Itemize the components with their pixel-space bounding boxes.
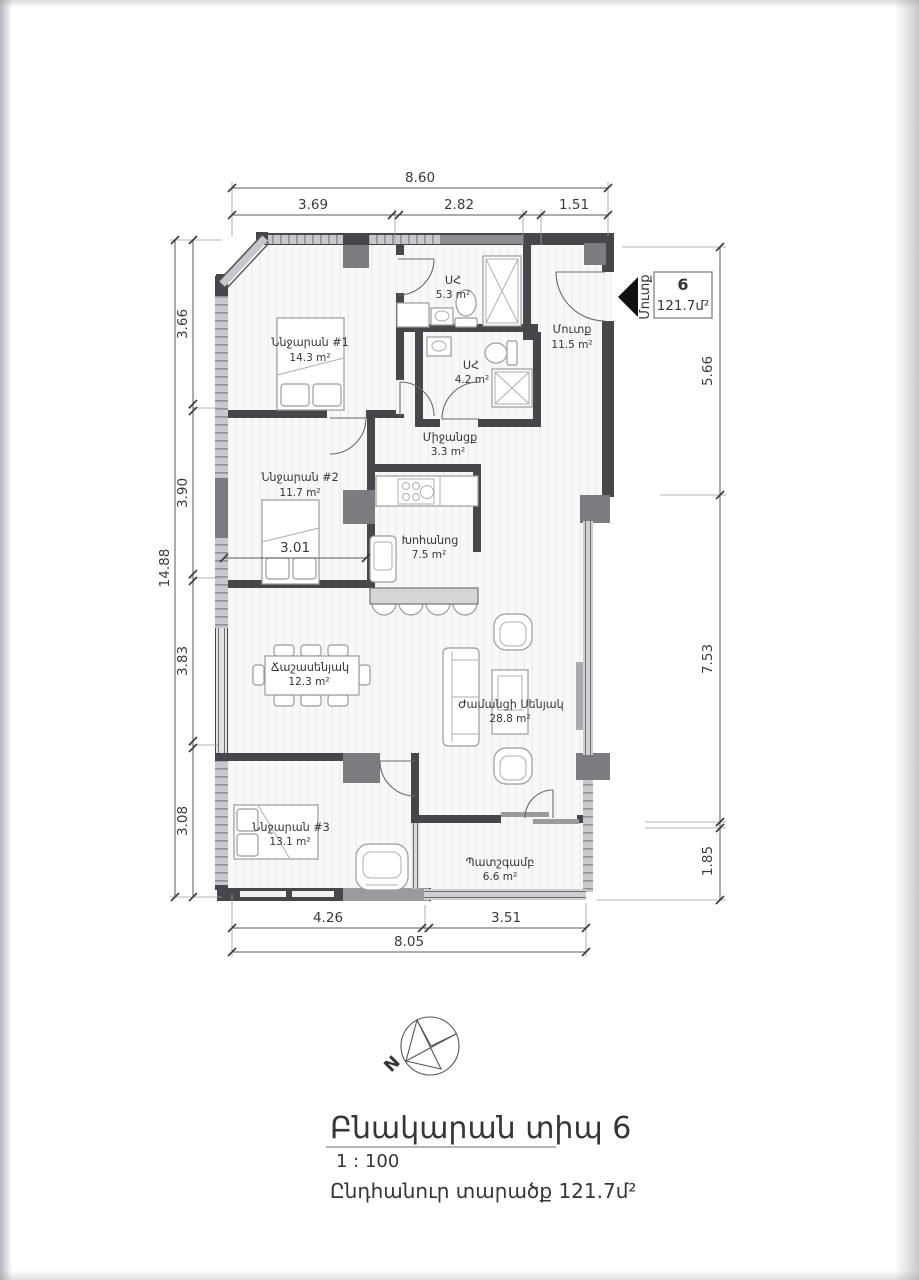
room-name: ՍՀ	[463, 359, 479, 372]
dim-label: 1.51	[559, 197, 589, 213]
room-name: Ննջարան #2	[261, 471, 339, 484]
plan-total-area: Ընդհանուր տարածք 121.7մ²	[330, 1179, 636, 1203]
dim-left-segments: 3.66 3.90 3.83 3.08	[175, 236, 197, 901]
dim-top-segments: 3.69 2.82 1.51	[228, 197, 612, 219]
dim-label: 3.01	[280, 540, 310, 556]
room-name: ՍՀ	[445, 274, 461, 287]
dim-label: 3.90	[175, 478, 191, 508]
room-name: Մուտք	[553, 323, 592, 336]
dim-label: 1.85	[700, 846, 716, 876]
compass-north-label: N	[380, 1052, 404, 1076]
dim-label: 8.05	[394, 934, 424, 950]
dim-label: 14.88	[157, 549, 173, 588]
entry-direction-label: Մուտք	[638, 274, 653, 319]
dim-top-total: 8.60	[228, 170, 612, 192]
dim-label: 7.53	[700, 644, 716, 674]
entrance-arrow-icon	[618, 277, 638, 317]
room-area: 11.5 m²	[551, 339, 592, 351]
title-block: Բնակարան տիպ 6 1 : 100 Ընդհանուր տարածք …	[326, 1111, 636, 1203]
room-name: Խոհանոց	[402, 534, 459, 547]
unit-area: 121.7մ²	[657, 298, 710, 314]
dim-label: 3.51	[491, 910, 521, 926]
dim-label: 5.66	[700, 356, 716, 386]
dim-label: 4.26	[313, 910, 343, 926]
unit-info-box: 6 121.7մ²	[654, 272, 712, 318]
room-area: 11.7 m²	[279, 487, 320, 499]
room-area: 12.3 m²	[288, 676, 329, 688]
dim-label: 3.83	[175, 646, 191, 676]
floor-plan-drawing: Ննջարան #1 14.3 m² ՍՀ 5.3 m² Մուտք 11.5 …	[0, 0, 919, 1280]
room-name: Ննջարան #1	[271, 336, 349, 349]
floor-plan-page: Ննջարան #1 14.3 m² ՍՀ 5.3 m² Մուտք 11.5 …	[0, 0, 919, 1280]
north-compass-icon: N	[380, 1017, 459, 1077]
room-name: Ննջարան #3	[252, 821, 330, 834]
room-area: 7.5 m²	[412, 549, 446, 561]
unit-number: 6	[677, 275, 688, 294]
plan-title: Բնակարան տիպ 6	[330, 1111, 631, 1146]
dim-right-segments: 5.66 7.53 1.85	[700, 243, 724, 904]
dim-bottom-segments: 4.26 3.51	[228, 910, 590, 932]
entry-marker: Մուտք	[618, 274, 653, 319]
dim-label: 2.82	[444, 197, 474, 213]
room-name: Ժամանցի Սենյակ	[458, 698, 564, 711]
room-area: 14.3 m²	[289, 352, 330, 364]
plan-scale: 1 : 100	[336, 1151, 399, 1172]
dim-label: 3.66	[175, 309, 191, 339]
dim-label: 8.60	[405, 170, 435, 186]
room-area: 13.1 m²	[269, 836, 310, 848]
room-area: 28.8 m²	[489, 713, 530, 725]
dim-bottom-total: 8.05	[228, 934, 590, 956]
room-name: Միջանցք	[423, 431, 477, 444]
room-area: 4.2 m²	[455, 374, 489, 386]
room-name: Պատշգամբ	[466, 856, 535, 869]
room-area: 6.6 m²	[483, 871, 517, 883]
dim-label: 3.08	[175, 806, 191, 836]
room-area: 3.3 m²	[431, 446, 465, 458]
dim-label: 3.69	[298, 197, 328, 213]
room-name: Ճաշասենյակ	[271, 661, 349, 674]
room-area: 5.3 m²	[436, 289, 470, 301]
